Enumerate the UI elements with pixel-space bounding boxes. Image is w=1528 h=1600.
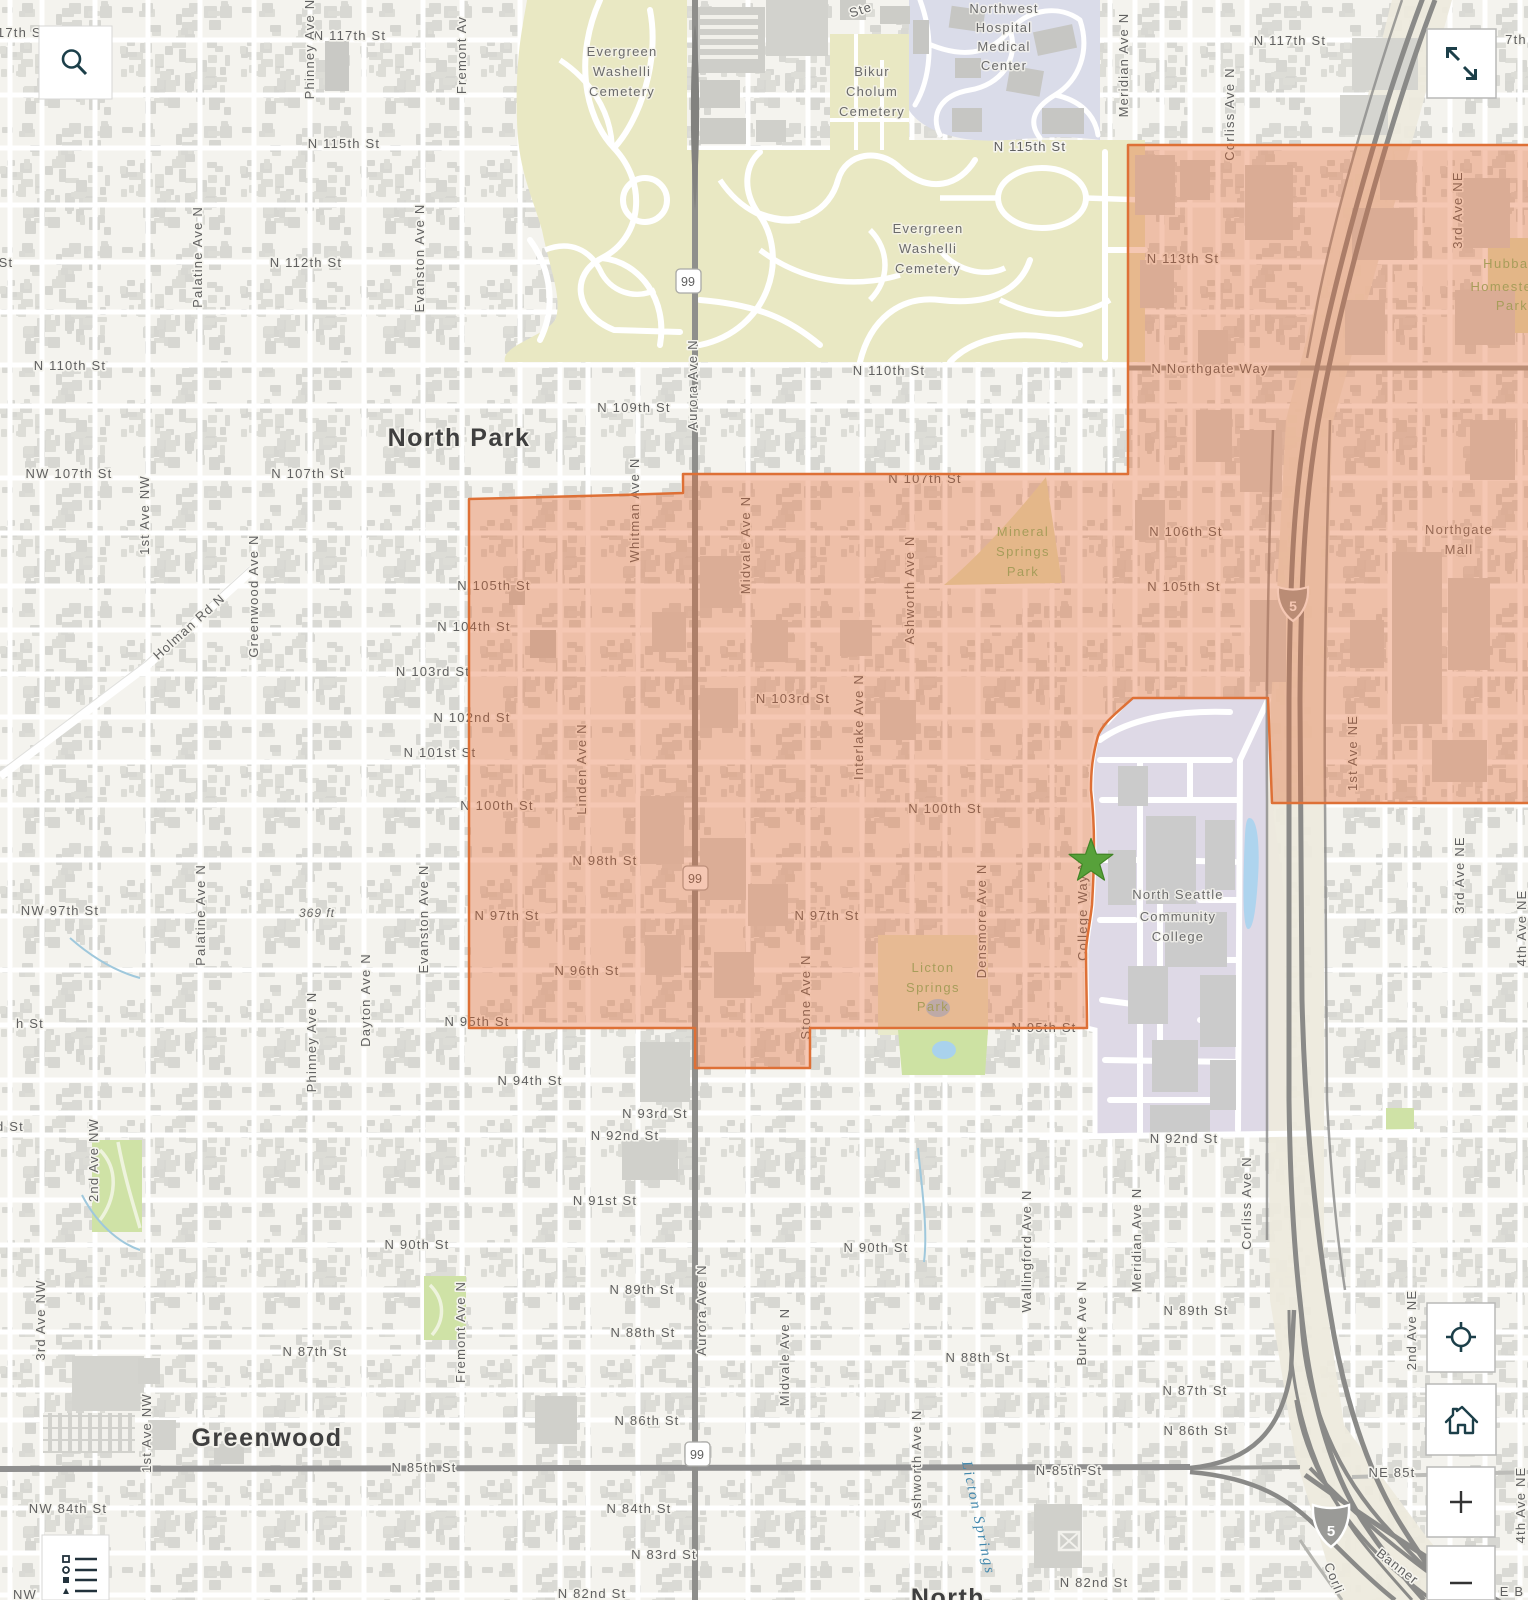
svg-text:North: North xyxy=(911,1584,985,1600)
svg-text:Aurora Ave N: Aurora Ave N xyxy=(685,339,700,430)
svg-text:E B: E B xyxy=(1500,1584,1525,1599)
svg-text:N 93rd St: N 93rd St xyxy=(622,1106,688,1121)
svg-text:h St: h St xyxy=(16,1016,44,1031)
svg-text:N 86th St: N 86th St xyxy=(615,1413,680,1428)
svg-text:Midvale Ave N: Midvale Ave N xyxy=(777,1308,792,1406)
svg-text:N 87th St: N 87th St xyxy=(1163,1383,1228,1398)
svg-text:N 94th St: N 94th St xyxy=(498,1073,563,1088)
svg-text:N-85th-St: N-85th-St xyxy=(1036,1463,1102,1478)
svg-text:N 91st St: N 91st St xyxy=(573,1193,637,1208)
svg-text:Park: Park xyxy=(917,999,949,1014)
svg-text:N 82nd St: N 82nd St xyxy=(558,1586,627,1600)
svg-text:N 92nd St: N 92nd St xyxy=(591,1128,660,1143)
svg-text:North Seattle: North Seattle xyxy=(1132,887,1223,902)
svg-text:Phinney Ave N: Phinney Ave N xyxy=(302,0,317,99)
svg-text:Homestead: Homestead xyxy=(1470,279,1528,294)
svg-text:Springs: Springs xyxy=(996,544,1050,559)
svg-text:Cemetery: Cemetery xyxy=(839,104,905,119)
svg-text:Palatine Ave N: Palatine Ave N xyxy=(193,864,208,966)
svg-text:Greenwood Ave N: Greenwood Ave N xyxy=(246,534,261,657)
svg-text:NE 85t: NE 85t xyxy=(1369,1465,1416,1480)
svg-text:N 87th St: N 87th St xyxy=(283,1344,348,1359)
svg-text:N 103rd St: N 103rd St xyxy=(396,664,470,679)
svg-text:Ashworth Ave N: Ashworth Ave N xyxy=(909,1409,924,1518)
svg-text:N 88th St: N 88th St xyxy=(611,1325,676,1340)
svg-text:Bikur: Bikur xyxy=(854,64,890,79)
svg-text:Cemetery: Cemetery xyxy=(895,261,961,276)
svg-text:N 92nd St: N 92nd St xyxy=(1150,1131,1219,1146)
svg-text:Park: Park xyxy=(1007,564,1039,579)
svg-text:Corliss Ave N: Corliss Ave N xyxy=(1239,1156,1254,1249)
svg-text:7th: 7th xyxy=(1505,32,1527,47)
svg-text:Washelli: Washelli xyxy=(593,64,651,79)
svg-text:99: 99 xyxy=(681,275,695,289)
svg-text:Cemetery: Cemetery xyxy=(589,84,655,99)
svg-text:Evanston Ave N: Evanston Ave N xyxy=(412,203,427,312)
svg-text:N 88th St: N 88th St xyxy=(946,1350,1011,1365)
svg-text:1st Ave NW: 1st Ave NW xyxy=(137,475,152,555)
svg-text:N 117th St: N 117th St xyxy=(1254,33,1326,48)
svg-text:Evanston Ave N: Evanston Ave N xyxy=(416,864,431,973)
svg-text:Burke Ave N: Burke Ave N xyxy=(1074,1280,1089,1365)
svg-text:N 110th St: N 110th St xyxy=(853,363,925,378)
svg-text:2nd Ave NW: 2nd Ave NW xyxy=(86,1118,101,1202)
svg-text:Palatine Ave N: Palatine Ave N xyxy=(190,206,205,308)
svg-text:N 107th St: N 107th St xyxy=(271,466,344,481)
svg-text:4th Ave NE: 4th Ave NE xyxy=(1513,1467,1528,1544)
svg-text:5: 5 xyxy=(1327,1523,1335,1540)
svg-text:Washelli: Washelli xyxy=(899,241,957,256)
svg-text:99: 99 xyxy=(690,1448,704,1462)
svg-text:369 ft: 369 ft xyxy=(299,906,335,920)
svg-text:N 109th St: N 109th St xyxy=(597,400,670,415)
svg-text:NW 107th St: NW 107th St xyxy=(26,466,113,481)
svg-text:N 112th St: N 112th St xyxy=(270,255,342,270)
svg-text:3rd Ave NW: 3rd Ave NW xyxy=(33,1279,48,1360)
svg-text:N 115th St: N 115th St xyxy=(308,136,380,151)
svg-text:N 110th St: N 110th St xyxy=(34,358,106,373)
svg-text:Meridian Ave N: Meridian Ave N xyxy=(1116,13,1131,118)
svg-text:1st Ave NW: 1st Ave NW xyxy=(139,1393,154,1473)
svg-text:N 83rd St: N 83rd St xyxy=(631,1547,697,1562)
svg-text:Cholum: Cholum xyxy=(846,84,898,99)
svg-text:N 85th St: N 85th St xyxy=(392,1460,457,1475)
svg-text:College: College xyxy=(1152,929,1205,944)
svg-text:NW 97th St: NW 97th St xyxy=(21,903,99,918)
svg-text:Northwest: Northwest xyxy=(969,1,1038,16)
svg-text:Hospital: Hospital xyxy=(976,20,1033,35)
svg-text:Fremont Av: Fremont Av xyxy=(454,16,469,94)
svg-text:Dayton Ave N: Dayton Ave N xyxy=(358,953,373,1047)
svg-text:N 89th St: N 89th St xyxy=(610,1282,675,1297)
svg-text:NW 84th St: NW 84th St xyxy=(29,1501,107,1516)
svg-text:Greenwood: Greenwood xyxy=(191,1424,342,1452)
svg-text:North Park: North Park xyxy=(388,424,531,452)
svg-text:Meridian Ave N: Meridian Ave N xyxy=(1129,1188,1144,1293)
svg-text:4th Ave NE: 4th Ave NE xyxy=(1514,890,1528,967)
svg-text:N 86th St: N 86th St xyxy=(1164,1423,1229,1438)
svg-text:N 82nd St: N 82nd St xyxy=(1060,1575,1129,1590)
svg-text:N 90th St: N 90th St xyxy=(844,1240,909,1255)
svg-text:Fremont Ave N: Fremont Ave N xyxy=(453,1281,468,1383)
svg-text:Center: Center xyxy=(981,58,1027,73)
svg-text:N 101st St: N 101st St xyxy=(404,745,477,760)
svg-text:Evergreen: Evergreen xyxy=(587,44,658,59)
svg-text:d St: d St xyxy=(0,1119,24,1134)
svg-text:Medical: Medical xyxy=(977,39,1030,54)
svg-text:2nd Ave NE: 2nd Ave NE xyxy=(1404,1290,1419,1370)
svg-text:Community: Community xyxy=(1140,909,1217,924)
svg-text:N 117th St: N 117th St xyxy=(314,28,386,43)
svg-text:N 90th St: N 90th St xyxy=(385,1237,450,1252)
svg-text:Mineral: Mineral xyxy=(997,524,1049,539)
svg-text:Hubbard: Hubbard xyxy=(1483,256,1528,271)
svg-text:N 89th St: N 89th St xyxy=(1164,1303,1229,1318)
svg-text:Evergreen: Evergreen xyxy=(893,221,964,236)
svg-text:3rd Ave NE: 3rd Ave NE xyxy=(1452,836,1467,914)
svg-text:Phinney Ave N: Phinney Ave N xyxy=(304,992,319,1093)
svg-text:Park: Park xyxy=(1496,298,1528,313)
svg-text:N 115th St: N 115th St xyxy=(994,139,1066,154)
svg-text:Licton: Licton xyxy=(911,960,954,975)
svg-text:Aurora Ave N: Aurora Ave N xyxy=(694,1264,709,1355)
svg-text:Wallingford Ave N: Wallingford Ave N xyxy=(1019,1189,1034,1312)
svg-text:N 84th St: N 84th St xyxy=(607,1501,672,1516)
svg-text:Springs: Springs xyxy=(906,980,960,995)
svg-text:St: St xyxy=(0,255,13,270)
svg-text:NW: NW xyxy=(13,1587,37,1600)
